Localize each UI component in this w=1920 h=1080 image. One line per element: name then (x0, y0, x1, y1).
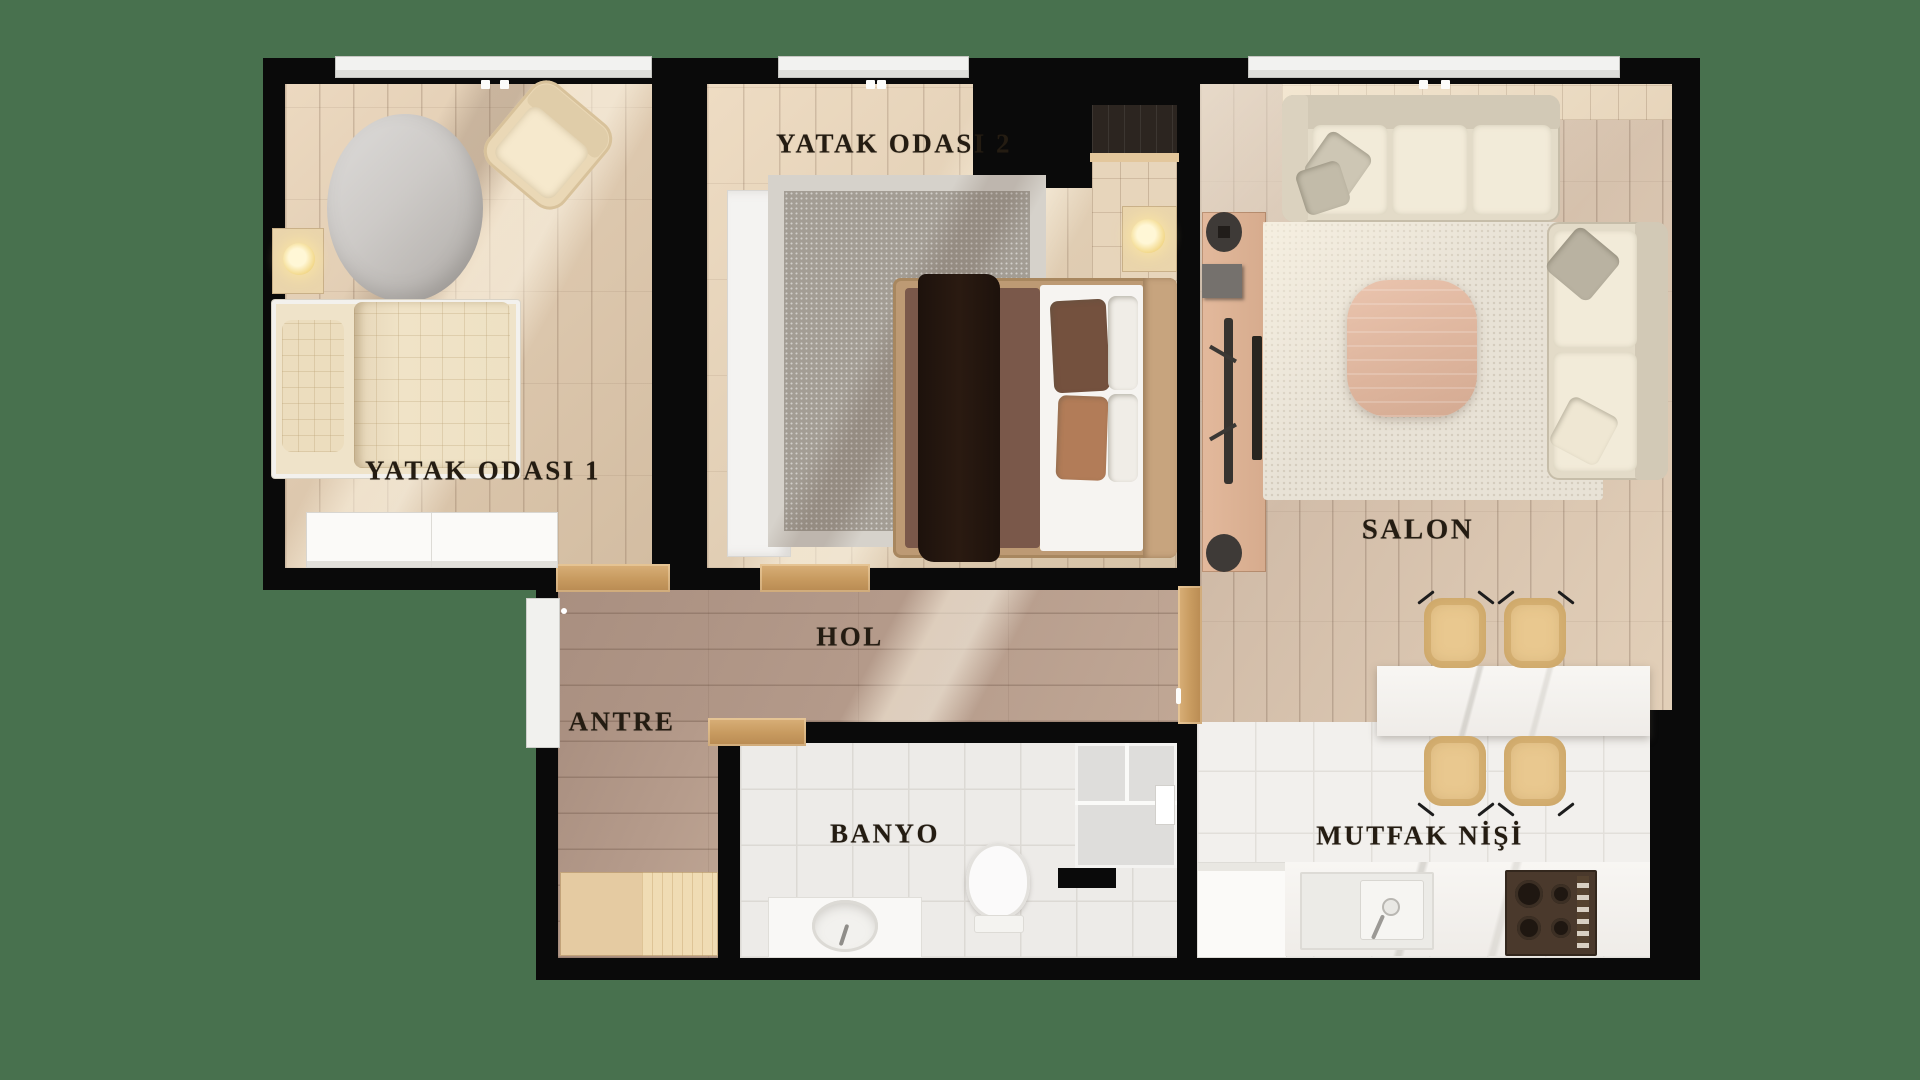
bed2-pillow-tan (1056, 395, 1109, 481)
wall-bedroom1-bottom (263, 568, 560, 590)
label-hall: HOL (816, 622, 884, 653)
bathroom-door (708, 718, 806, 746)
entry-door-handle (561, 608, 567, 614)
wall-right-kitchen (1650, 710, 1700, 980)
kitchen-appliance (1197, 862, 1287, 958)
wall-bathroom-top-b (803, 722, 1177, 743)
shower-fixture-icon (1155, 785, 1175, 825)
bed2-pillow-white-a (1108, 296, 1138, 390)
tv-screen (1252, 336, 1262, 460)
hall-floor (558, 590, 1178, 722)
bedroom-1-lamp (283, 243, 315, 275)
wall-hall-top-b (868, 568, 1200, 590)
bed-pillow (282, 320, 344, 452)
bedroom-2-bed (893, 278, 1177, 558)
burner-icon (1551, 918, 1571, 938)
wall-right-salon (1672, 58, 1700, 722)
floor-plan-scene: YATAK ODASI 1 YATAK ODASI 2 SALON HOL AN… (0, 0, 1920, 1080)
bar-chair-3 (1424, 736, 1486, 806)
wall-bedroom2-salon (1177, 58, 1200, 590)
bedroom-2-lamp (1131, 219, 1165, 253)
entry-cabinet (560, 872, 718, 956)
label-kitchen-niche: MUTFAK NİŞİ (1316, 821, 1524, 852)
bedroom-1-dresser (306, 512, 558, 568)
wall-bathroom-left (718, 743, 740, 958)
sofa-right-back (1635, 222, 1668, 480)
burner-icon (1551, 884, 1571, 904)
breakfast-bar (1377, 666, 1650, 736)
label-entry: ANTRE (568, 707, 675, 738)
bar-chair-4 (1504, 736, 1566, 806)
wall-shower-stub (1058, 868, 1116, 888)
wall-hall-top-a (668, 568, 762, 590)
shower-glass-line-v (1125, 743, 1129, 805)
label-salon: SALON (1362, 514, 1474, 547)
entry-door (526, 598, 560, 748)
speaker-bottom-icon (1206, 534, 1242, 572)
sofa-top (1282, 95, 1560, 222)
label-bedroom-2: YATAK ODASI 2 (776, 129, 1012, 160)
salon-window (1248, 56, 1620, 78)
bar-chair-1 (1424, 598, 1486, 668)
hob-controls (1577, 876, 1589, 948)
sofa-cushion (1472, 125, 1552, 215)
burner-icon (1515, 880, 1543, 908)
wall-mass-top (973, 58, 1092, 188)
kitchen-sink-unit (1300, 872, 1434, 950)
media-box (1202, 264, 1242, 298)
coffee-table (1347, 280, 1477, 417)
bed2-pillow-white-b (1108, 394, 1138, 482)
salon-door (1178, 586, 1202, 724)
wall-bottom (536, 958, 1700, 980)
cabinet-grain (642, 872, 718, 956)
tv-mount-arm (1224, 318, 1233, 484)
bed2-throw (918, 274, 1000, 562)
speaker-top-core (1218, 226, 1230, 238)
wall-band-top-nook (1092, 58, 1185, 105)
bed2-headboard (1143, 278, 1177, 558)
bedroom-1-door (556, 564, 670, 592)
toilet-tank (974, 915, 1024, 933)
bedroom-1-bed (272, 300, 520, 478)
sink-drain-icon (1382, 898, 1400, 916)
bedroom-2-closet (1092, 105, 1177, 153)
label-bathroom: BANYO (830, 819, 940, 850)
bedroom-1-round-rug (327, 114, 483, 302)
bar-chair-2 (1504, 598, 1566, 668)
sofa-right (1547, 222, 1668, 480)
bed-duvet (354, 302, 510, 468)
label-bedroom-1: YATAK ODASI 1 (365, 456, 601, 487)
bedroom-2-window (778, 56, 969, 78)
toilet (966, 843, 1030, 919)
sofa-cushion (1392, 125, 1468, 215)
wall-divider-bedrooms (652, 58, 707, 590)
gas-hob (1505, 870, 1597, 956)
bed2-pillow-brown (1050, 299, 1111, 394)
sofa-top-back (1282, 95, 1560, 129)
wall-bathroom-kitchen (1177, 722, 1197, 980)
burner-icon (1517, 916, 1541, 940)
dresser-divider (431, 513, 432, 567)
bedroom-2-door (760, 564, 870, 592)
salon-door-handle (1176, 688, 1181, 704)
bedroom-1-window (335, 56, 652, 78)
shower-enclosure (1075, 743, 1177, 868)
bedroom-2-closet-shelf (1090, 153, 1179, 162)
